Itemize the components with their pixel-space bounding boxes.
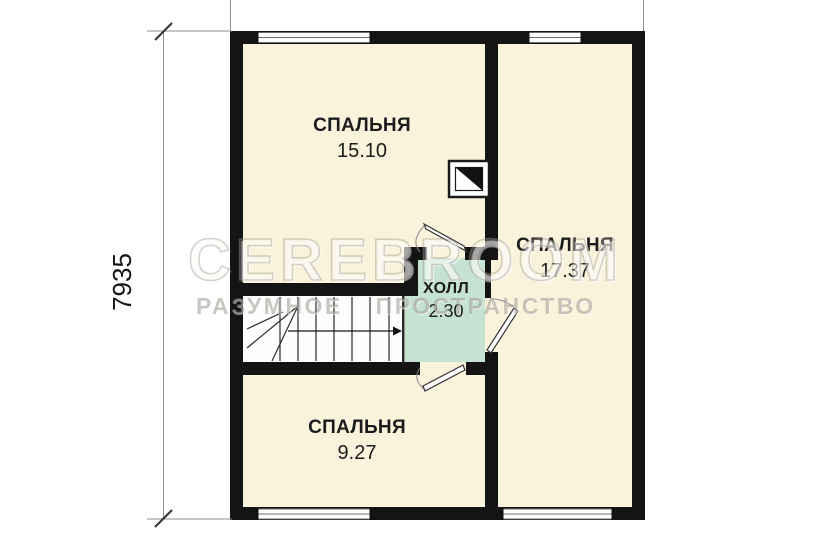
dimension-label: 7935 [107, 252, 137, 312]
room-area: 17.37 [516, 261, 614, 281]
wall-partition-vertical-top [485, 44, 498, 260]
room-area: 2.30 [423, 302, 469, 320]
stair-hall-divider [402, 296, 405, 362]
wall-outer-right [632, 31, 645, 520]
wall-outer-left [230, 31, 243, 520]
wall-hall-top-right [465, 247, 485, 260]
wall-partition-vertical-bottom [485, 352, 498, 507]
ventilation-shaft-icon [449, 161, 489, 197]
room-name: СПАЛЬНЯ [313, 116, 411, 135]
wall-bedroom1-bottom [243, 283, 418, 296]
window-bottom-right [501, 509, 614, 520]
room-label-hall: ХОЛЛ 2.30 [423, 281, 469, 320]
window-bottom-left [256, 509, 372, 520]
room-area: 15.10 [313, 141, 411, 161]
wall-hall-right-thin [485, 260, 491, 298]
wall-bedroom3-top-left [243, 362, 420, 375]
room-name: СПАЛЬНЯ [516, 236, 614, 255]
room-label-bedroom-bottom-left: СПАЛЬНЯ 9.27 [308, 418, 406, 463]
room-label-bedroom-top-left: СПАЛЬНЯ 15.10 [313, 116, 411, 161]
window-top-left [256, 32, 372, 43]
room-label-bedroom-right: СПАЛЬНЯ 17.37 [516, 236, 614, 281]
room-name: СПАЛЬНЯ [308, 418, 406, 437]
room-area: 9.27 [308, 443, 406, 463]
stair-floor [243, 296, 403, 362]
wall-bedroom3-top-right [466, 362, 498, 375]
room-name: ХОЛЛ [423, 281, 469, 297]
wall-hall-top-left [404, 247, 427, 260]
floor-plan: СПАЛЬНЯ 15.10 СПАЛЬНЯ 17.37 ХОЛЛ 2.30 СП… [0, 0, 825, 550]
window-top-right [527, 32, 583, 43]
